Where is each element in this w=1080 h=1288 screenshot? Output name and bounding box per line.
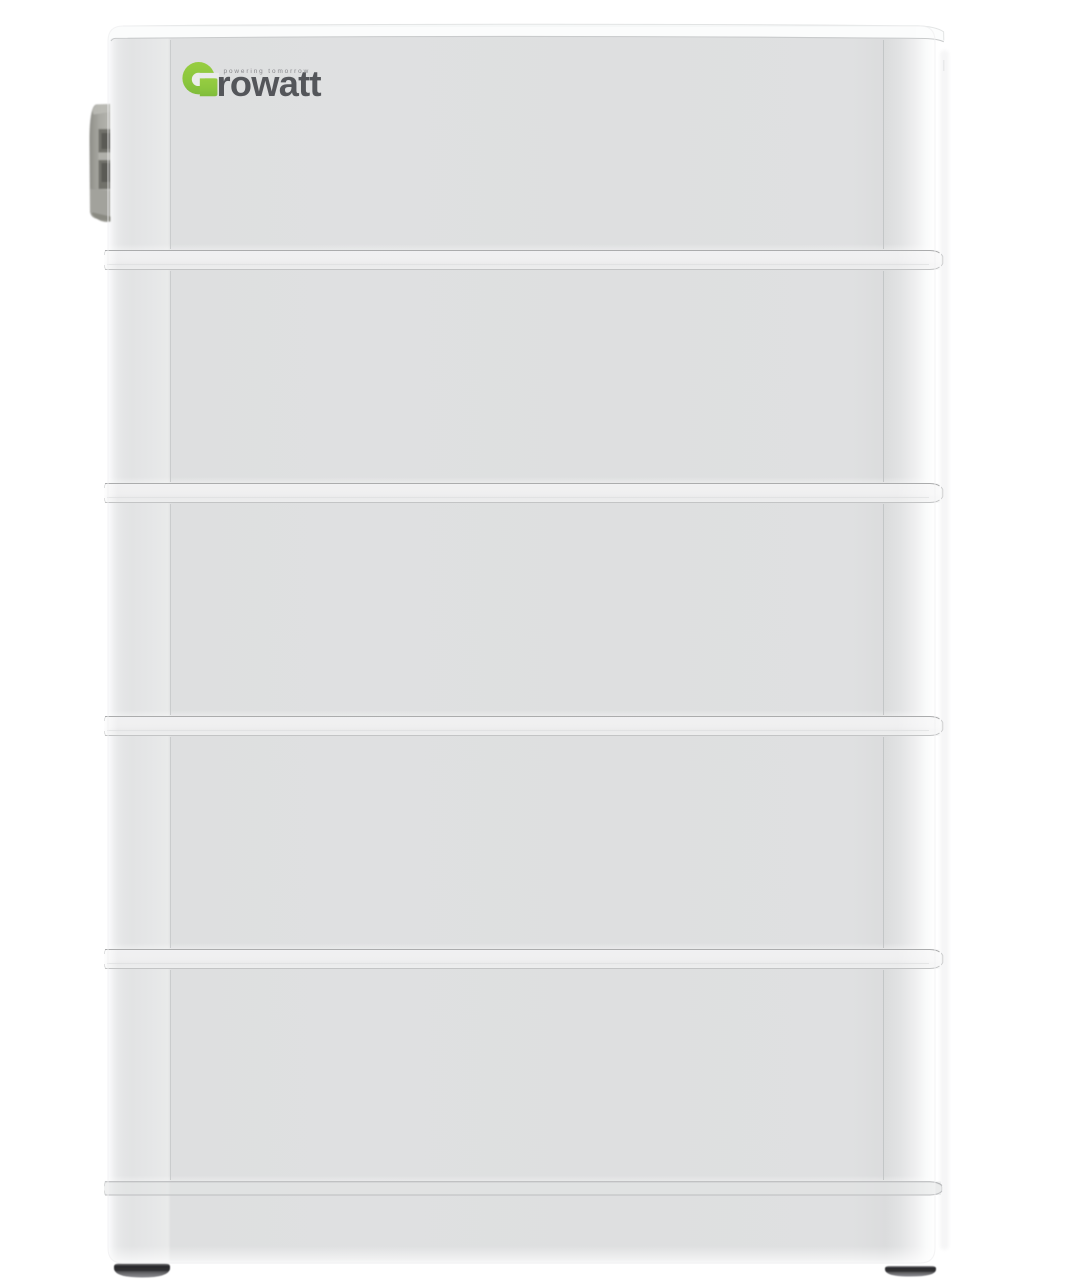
svg-text:powering tomorrow: powering tomorrow xyxy=(224,68,311,75)
